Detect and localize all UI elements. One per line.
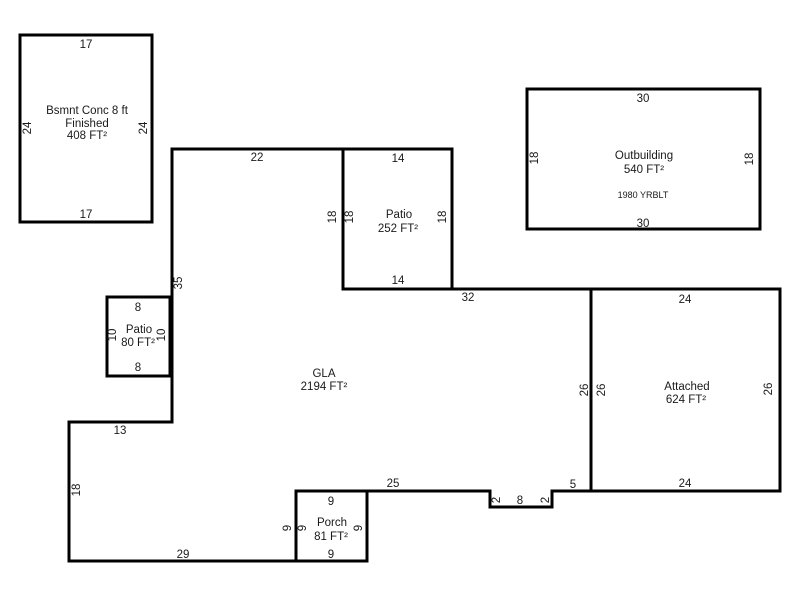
patio-small-dim-left: 10: [107, 329, 119, 342]
basement-dim-left: 24: [22, 121, 34, 134]
patio-large-dim-right: 18: [437, 211, 449, 224]
outbuilding-year-built: 1980 YRBLT: [618, 190, 669, 200]
outbuilding-dim-top: 30: [637, 93, 650, 105]
basement-name-line2: Finished: [65, 118, 108, 130]
basement-dim-bottom: 17: [80, 209, 93, 221]
porch-name: Porch: [317, 517, 347, 529]
patio-large-dim-bottom: 14: [392, 275, 405, 287]
gla-dim-notch-bottom: 8: [517, 495, 523, 507]
gla-dim-step: 13: [114, 425, 127, 437]
outbuilding-dim-right: 18: [744, 153, 756, 166]
sketch-outlines: [20, 35, 780, 561]
porch-dim-right: 9: [353, 525, 365, 531]
gla-dim-notch-left: 2: [491, 497, 503, 503]
basement-area-label: 408 FT²: [67, 130, 107, 142]
gla-dim-patio-wall: 18: [327, 211, 339, 224]
outbuilding-area-label: 540 FT²: [624, 164, 664, 176]
outbuilding-dim-bottom: 30: [637, 218, 650, 230]
porch-dim-bottom: 9: [328, 549, 334, 561]
outbuilding-name: Outbuilding: [615, 150, 673, 162]
gla-dim-bottom-right: 25: [387, 478, 400, 490]
gla-dim-notch-right: 2: [540, 497, 552, 503]
gla-dim-right-of-notch: 5: [570, 479, 576, 491]
patio-large-dim-left: 18: [344, 211, 356, 224]
attached-dim-top: 24: [679, 294, 692, 306]
gla-dim-left: 35: [173, 277, 185, 290]
basement-dim-right: 24: [138, 121, 150, 134]
patio-small-dim-top: 8: [135, 302, 141, 314]
attached-dim-bottom: 24: [679, 478, 692, 490]
outbuilding-dim-left: 18: [529, 152, 541, 165]
patio-large-dim-top: 14: [392, 153, 405, 165]
attached-dim-left: 26: [596, 384, 608, 397]
basement-dim-top: 17: [80, 39, 93, 51]
gla-name: GLA: [312, 368, 335, 380]
gla-dim-upper-right: 32: [462, 292, 475, 304]
patio-large-name: Patio: [386, 209, 412, 221]
gla-area-label: 2194 FT²: [301, 381, 348, 393]
porch-dim-top: 9: [328, 496, 334, 508]
patio-small-area-label: 80 FT²: [121, 337, 155, 349]
patio-small-name: Patio: [126, 324, 152, 336]
attached-dim-right: 26: [763, 383, 775, 396]
patio-small-dim-right: 10: [156, 329, 168, 342]
patio-small-dim-bottom: 8: [135, 362, 141, 374]
gla-dim-bottom: 29: [177, 549, 190, 561]
patio-large-area-label: 252 FT²: [378, 223, 418, 235]
gla-dim-top: 22: [251, 152, 264, 164]
attached-area-label: 624 FT²: [666, 394, 706, 406]
gla-dim-lower-left: 18: [71, 484, 83, 497]
floor-plan-sketch: Bsmnt Conc 8 ft Finished 408 FT² 17 17 2…: [0, 0, 800, 600]
basement-name-line1: Bsmnt Conc 8 ft: [46, 105, 129, 117]
porch-area-label: 81 FT²: [314, 531, 348, 543]
gla-dim-attached-wall: 26: [579, 384, 591, 397]
porch-dim-left: 9: [297, 525, 309, 531]
attached-name: Attached: [664, 381, 709, 393]
gla-dim-porch-wall: 9: [282, 525, 294, 531]
